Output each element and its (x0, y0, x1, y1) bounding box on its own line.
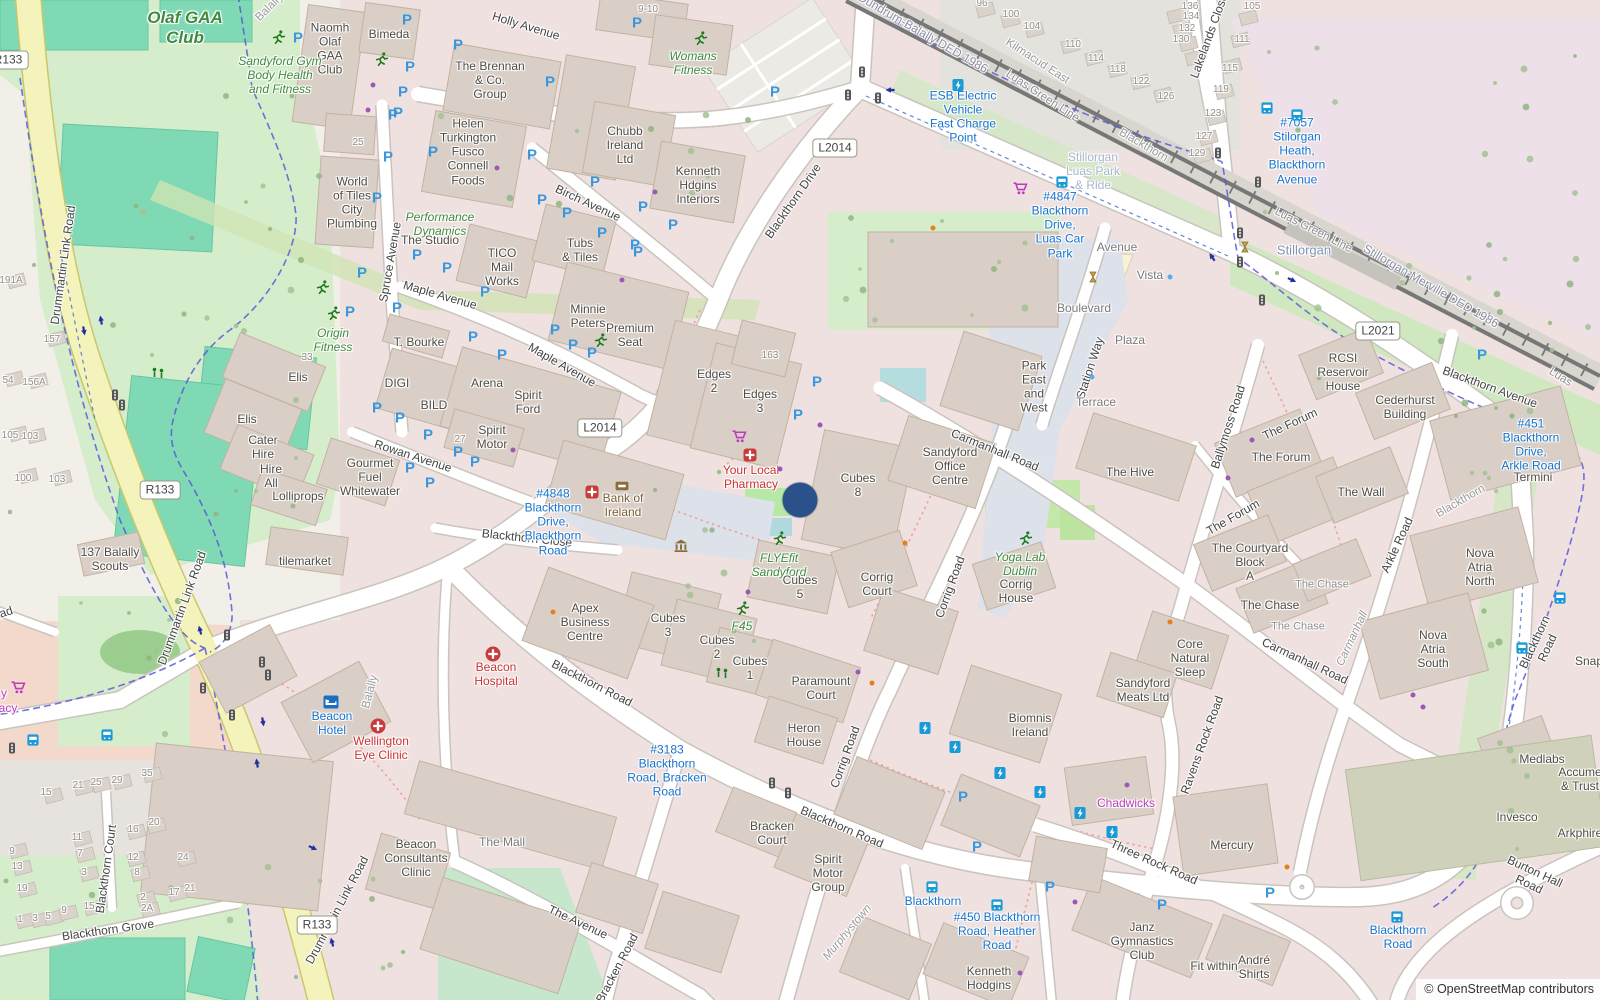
parking-icon: P (1045, 880, 1055, 895)
map-label: 35 (141, 768, 152, 780)
arrow-icon (78, 325, 91, 338)
map-label: tilemarket (279, 554, 331, 568)
map-label: 17 (168, 887, 179, 899)
attribution-link[interactable]: © OpenStreetMap contributors (1424, 982, 1594, 996)
dot-orange-icon (870, 681, 875, 686)
runner-icon (271, 30, 286, 45)
map-label: 134 (1183, 11, 1200, 23)
map-label: Nova Atria North (1465, 546, 1494, 588)
runner-icon (1018, 531, 1033, 546)
runner-icon (593, 333, 608, 348)
map-label: Plaza (1115, 333, 1145, 347)
dot-purple-icon (653, 190, 658, 195)
runner-icon (326, 306, 341, 321)
museum-icon (674, 540, 689, 553)
map-label: Sandyford Gym Body Health and Fitness (238, 54, 321, 96)
traffic-light-icon (769, 778, 775, 789)
map-canvas[interactable]: Holly AvenueBirch AvenueSpruce AvenueMap… (0, 0, 1600, 1000)
bus-icon (1261, 102, 1274, 115)
map-label: Cubes 8 (841, 471, 876, 499)
map-label: 11 (72, 832, 82, 844)
map-label: Stillorgan (1277, 242, 1331, 257)
dot-purple-icon (1250, 438, 1255, 443)
map-label: BILD (421, 398, 448, 412)
map-label: Nova Atria South (1417, 628, 1448, 670)
map-label: 163 (762, 350, 779, 362)
bus-icon (1056, 176, 1069, 189)
parking-icon: P (537, 193, 547, 208)
map-label: Boulevard (1057, 301, 1111, 315)
map-label: Bimeda (369, 27, 410, 41)
map-label: The Forum (1252, 450, 1311, 464)
map-label: Park East and West (1020, 359, 1047, 416)
map-label: Bracken Court (750, 819, 794, 847)
map-label: Spirit Ford (514, 388, 541, 416)
map-label: TICO Mail Works (485, 246, 519, 288)
hospital-icon (485, 646, 501, 662)
map-label: 111 (1234, 34, 1249, 46)
map-label: 33 (301, 352, 312, 364)
map-label: Mercury (1210, 838, 1253, 852)
map-label: Terrace (1076, 395, 1116, 409)
map-label: 105 (1244, 1, 1261, 13)
map-label: Womans Fitness (669, 49, 716, 77)
map-label: 29 (111, 775, 122, 787)
map-label: Kenneth Hodgins (967, 964, 1012, 992)
parking-icon: P (470, 455, 480, 470)
parking-icon: P (587, 346, 597, 361)
gate-icon (1240, 241, 1250, 254)
parking-icon: P (423, 428, 433, 443)
map-label: Snap (1575, 654, 1600, 668)
map-label: #451 Blackthorn Drive, Arkle Road (1497, 417, 1566, 474)
map-label: Beacon Hospital (474, 660, 517, 688)
arrow-icon (257, 716, 270, 729)
cart-icon (1013, 181, 1028, 195)
map-label: 12 (127, 852, 138, 864)
parking-icon: P (480, 285, 490, 300)
map-label: Sandyford Office Centre (923, 445, 978, 487)
map-label: 130 (1173, 34, 1190, 46)
map-label: Beacon Hotel (312, 709, 353, 737)
map-label: Chadwicks (1097, 796, 1155, 810)
map-label: Elis (237, 412, 256, 426)
map-label: 137 Balally Scouts (81, 545, 140, 573)
map-label: Hire All (260, 462, 282, 490)
map-label: Apex Business Centre (561, 601, 610, 643)
map-label: The Courtyard Block A (1212, 541, 1289, 583)
charging-icon (952, 79, 964, 92)
dot-blue-icon (1090, 375, 1095, 380)
pharmacy-icon (743, 448, 758, 463)
map-label: Premium Seat (606, 321, 654, 349)
dot-orange-icon (1285, 865, 1290, 870)
dot-purple-icon (371, 83, 376, 88)
map-label: Avenue (1097, 240, 1137, 254)
map-label: The Wall (1338, 485, 1385, 499)
dot-purple-icon (746, 590, 751, 595)
road-shield: R133 (297, 916, 338, 935)
parking-icon: P (453, 445, 463, 460)
map-label: 100 (15, 473, 32, 485)
traffic-light-icon (224, 630, 230, 641)
playground-icon (714, 667, 731, 680)
map-label: 103 (22, 431, 39, 443)
parking-icon: P (393, 106, 403, 121)
map-label: 105 (2, 430, 19, 442)
dot-purple-icon (818, 423, 823, 428)
parking-icon: P (395, 411, 405, 426)
dot-orange-icon (551, 610, 556, 615)
parking-icon: P (345, 305, 355, 320)
map-label: 21 (72, 780, 83, 792)
road-shield: R133 (0, 51, 28, 70)
parking-icon: P (402, 13, 412, 28)
map-label: 103 (49, 474, 66, 486)
charging-icon (949, 741, 961, 754)
map-label: 15 (83, 901, 94, 913)
parking-icon: P (392, 301, 402, 316)
charging-icon (994, 767, 1006, 780)
parking-icon: P (468, 330, 478, 345)
map-label: Tubs & Tiles (562, 236, 598, 264)
map-label: 5 (45, 911, 51, 923)
hospital-icon (370, 718, 386, 734)
parking-icon: P (633, 245, 643, 260)
map-label: World of Tiles City Plumbing (327, 175, 377, 232)
map-label: Paramount Court (792, 674, 851, 702)
map-label: y (1, 686, 7, 700)
traffic-light-icon (1255, 177, 1261, 188)
arrow-icon (251, 757, 264, 770)
parking-icon: P (453, 38, 463, 53)
runner-icon (315, 280, 330, 295)
map-label: Gourmet Fuel Whitewater (340, 456, 400, 498)
traffic-light-icon (119, 400, 125, 411)
charging-icon (919, 722, 931, 735)
map-label: Cater Hire (248, 433, 277, 461)
arrow-icon (95, 314, 108, 327)
parking-icon: P (383, 150, 393, 165)
parking-icon: P (1477, 348, 1487, 363)
bus-icon (1291, 109, 1304, 122)
map-label: Invesco (1496, 810, 1537, 824)
bus-icon (1554, 592, 1567, 605)
dot-purple-icon (1411, 693, 1416, 698)
parking-icon: P (372, 401, 382, 416)
traffic-light-icon (1215, 148, 1221, 159)
map-label: 96 (976, 0, 987, 10)
map-label: Kenneth Hdgins Interiors (676, 164, 721, 206)
map-label: Spirit Motor Group (811, 852, 844, 894)
dot-purple-icon (1421, 705, 1426, 710)
map-label: Accume & Trust (1558, 765, 1600, 793)
map-label: F45 (732, 619, 753, 633)
map-label: Sandyford Meats Ltd (1116, 676, 1171, 704)
cart-icon (732, 429, 747, 443)
parking-icon: P (958, 790, 968, 805)
map-label: Edges 2 (697, 367, 731, 395)
charging-icon (1074, 807, 1086, 820)
pharmacy-icon (585, 485, 600, 500)
map-label: Olaf GAA Club (147, 8, 223, 48)
parking-icon: P (638, 200, 648, 215)
map-label: Origin Fitness (314, 326, 353, 354)
map-label: 126 (1158, 91, 1175, 103)
parking-icon: P (793, 408, 803, 423)
parking-icon: P (527, 148, 537, 163)
map-label: 115 (1222, 63, 1238, 75)
hotel-icon (323, 696, 339, 709)
map-label: 13 (11, 861, 22, 873)
map-label: RCSI Reservoir House (1317, 351, 1368, 393)
map-label: Cubes 3 (651, 611, 686, 639)
parking-icon: P (412, 248, 422, 263)
parking-icon: P (632, 16, 642, 31)
map-label: The Chase (1295, 579, 1349, 592)
parking-icon: P (428, 145, 438, 160)
map-label: Minnie Peters (570, 302, 605, 330)
traffic-light-icon (859, 67, 865, 78)
charging-icon (1106, 826, 1118, 839)
dot-purple-icon (495, 166, 500, 171)
dot-orange-icon (903, 541, 908, 546)
map-label: Chubb Ireland Ltd (607, 124, 644, 166)
parking-icon: P (1157, 898, 1167, 913)
map-label: Spirit Motor (477, 423, 508, 451)
parking-icon: P (405, 60, 415, 75)
map-label: Corrig Court (861, 570, 894, 598)
map-label: 2A (141, 903, 153, 915)
map-label: The Studio (401, 233, 459, 247)
map-label: The Hive (1106, 465, 1154, 479)
parking-icon: P (398, 85, 408, 100)
map-label: 110 (1065, 39, 1081, 51)
map-label: Blackthorn Road (1370, 923, 1427, 951)
parking-icon: P (568, 338, 578, 353)
parking-icon: P (812, 375, 822, 390)
traffic-light-icon (1237, 257, 1243, 268)
map-label: Heron House (787, 721, 822, 749)
map-label: Arkphire (1558, 826, 1600, 840)
runner-icon (374, 52, 389, 67)
map-label: Wellington Eye Clinic (353, 734, 409, 762)
map-label: Fit within (1190, 959, 1237, 973)
traffic-light-icon (112, 390, 118, 401)
parking-icon: P (550, 323, 560, 338)
map-label: 119 (1213, 84, 1229, 96)
traffic-light-icon (259, 657, 265, 668)
map-label: 9 (61, 905, 67, 917)
parking-icon: P (293, 31, 303, 46)
traffic-light-icon (845, 90, 851, 101)
runner-icon (693, 31, 708, 46)
parking-icon: P (562, 206, 572, 221)
parking-icon: P (425, 476, 435, 491)
map-label: Bank of Ireland (603, 491, 644, 519)
map-label: Core Natural Sleep (1171, 637, 1210, 679)
bus-icon (926, 881, 939, 894)
dot-purple-icon (778, 467, 783, 472)
map-label: Blackthorn (905, 894, 962, 908)
road-shield: L2021 (1355, 322, 1400, 341)
map-label: 15 (40, 787, 51, 799)
playground-icon (150, 367, 167, 380)
map-label: 123 (1205, 108, 1222, 120)
dot-purple-icon (366, 108, 371, 113)
map-label: 1 (17, 914, 23, 926)
dot-orange-icon (931, 226, 936, 231)
map-label: 54 (2, 375, 13, 387)
cart-icon (11, 680, 26, 694)
map-label: 7 (77, 848, 83, 860)
map-label: 129 (1189, 148, 1206, 160)
map-label: Cederhurst Building (1375, 393, 1434, 421)
map-label: 118 (1110, 64, 1126, 76)
map-label: 25 (352, 137, 363, 149)
parking-icon: P (770, 85, 780, 100)
map-label: 25 (90, 777, 101, 789)
map-label: Helen Turkington Fusco Connell Foods (440, 117, 496, 188)
map-label: acy (0, 701, 17, 715)
map-label: #7057 Stilorgan Heath, Blackthorn Avenue (1269, 116, 1326, 187)
map-label: Arena (471, 376, 503, 390)
map-label: 20 (148, 817, 159, 829)
traffic-light-icon (1259, 295, 1265, 306)
dot-purple-icon (1125, 783, 1130, 788)
map-label: #450 Blackthorn Road, Heather Road (954, 910, 1041, 952)
map-label: Stillorgan Luas Park & Ride (1066, 150, 1120, 192)
parking-icon: P (1265, 886, 1275, 901)
map-label: 3 (81, 867, 87, 879)
bank-icon (615, 480, 630, 493)
parking-icon: P (357, 266, 367, 281)
map-label: 156A (22, 377, 45, 389)
traffic-light-icon (9, 743, 15, 754)
bus-icon (1391, 911, 1404, 924)
parking-icon: P (497, 348, 507, 363)
parking-icon: P (545, 75, 555, 90)
map-label: Elis (288, 370, 307, 384)
map-label: 24 (177, 852, 188, 864)
map-label: 19 (16, 883, 27, 895)
arrow-icon (885, 85, 896, 96)
charging-icon (1034, 786, 1046, 799)
dot-purple-icon (1226, 476, 1231, 481)
dot-blue-icon (1168, 275, 1173, 280)
map-label: The Mall (479, 835, 525, 849)
parking-icon: P (597, 226, 607, 241)
parking-icon: P (442, 261, 452, 276)
map-label: Cubes 5 (783, 573, 818, 601)
parking-icon: P (972, 840, 982, 855)
runner-icon (735, 601, 750, 616)
attribution: © OpenStreetMap contributors (1416, 979, 1600, 1000)
dot-purple-icon (856, 670, 861, 675)
map-label: 122 (1133, 76, 1150, 88)
map-label: Vista (1137, 268, 1163, 282)
map-label: 104 (1024, 21, 1041, 33)
map-label: 9 (9, 846, 15, 858)
map-label: Yoga Lab Dublin (995, 550, 1046, 578)
map-label: Corrig House (999, 577, 1034, 605)
traffic-light-icon (200, 683, 206, 694)
map-label: #3183 Blackthorn Road, Bracken Road (627, 743, 706, 800)
map-label: 21 (184, 883, 195, 895)
map-label: T. Bourke (394, 335, 445, 349)
map-label: Cubes 1 (733, 654, 768, 682)
map-label: André Shirts (1238, 953, 1270, 981)
map-label: 157 (44, 334, 61, 346)
map-label: Your Local Pharmacy (723, 463, 779, 491)
traffic-light-icon (785, 788, 791, 799)
bus-icon (101, 729, 114, 742)
map-label: #4847 Blackthorn Drive, Luas Car Park (1032, 190, 1089, 261)
dot-orange-icon (1168, 620, 1173, 625)
traffic-light-icon (265, 670, 271, 681)
parking-icon: P (590, 175, 600, 190)
map-label: ESB Electric Vehicle Fast Charge Point (930, 89, 997, 146)
map-label: 16 (127, 824, 138, 836)
map-label: Lolliprops (272, 489, 323, 503)
map-label: The Brennan & Co. Group (455, 59, 524, 101)
map-label: Edges 3 (743, 387, 777, 415)
parking-icon: P (372, 191, 382, 206)
dot-purple-icon (1073, 900, 1078, 905)
map-label: Biomnis Ireland (1009, 711, 1052, 739)
runner-icon (772, 531, 787, 546)
dot-purple-icon (620, 278, 625, 283)
bus-icon (27, 734, 40, 747)
dot-purple-icon (1018, 971, 1023, 976)
map-label: 191A (0, 275, 23, 287)
parking-icon: P (405, 461, 415, 476)
location-marker[interactable] (783, 483, 818, 518)
parking-icon: P (668, 218, 678, 233)
road-shield: L2014 (577, 419, 622, 438)
road-shield: R133 (140, 481, 181, 500)
bus-icon (1516, 642, 1529, 655)
road-shield: L2014 (812, 139, 857, 158)
traffic-light-icon (875, 93, 881, 104)
traffic-light-icon (1237, 228, 1243, 239)
map-label: The Chase (1271, 621, 1325, 634)
map-label: Cubes 2 (700, 633, 735, 661)
map-label: 8 (134, 867, 140, 879)
bus-icon (991, 899, 1004, 912)
map-label: 3 (32, 913, 38, 925)
dot-purple-icon (511, 448, 516, 453)
map-label: The Chase (1241, 598, 1300, 612)
map-label: Beacon Consultants Clinic (384, 837, 447, 879)
map-label: Janz Gymnastics Club (1111, 920, 1174, 962)
map-label: 114 (1088, 53, 1104, 65)
map-label: DIGI (385, 376, 410, 390)
map-label: 100 (1003, 9, 1020, 21)
map-label: #4848 Blackthorn Drive, Blackthorn Road (525, 487, 582, 558)
map-label: 127 (1196, 131, 1213, 143)
traffic-light-icon (229, 710, 235, 721)
gate-icon (1088, 271, 1098, 284)
map-label: Termini (1514, 470, 1553, 484)
